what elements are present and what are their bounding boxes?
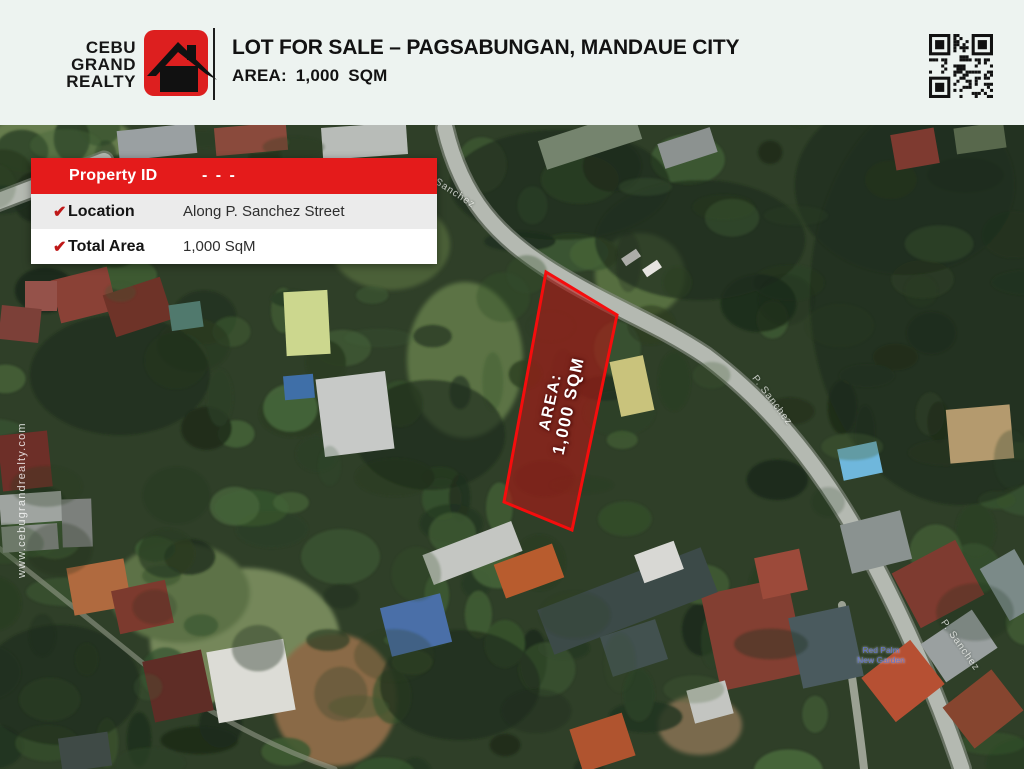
header-bar: CEBU GRAND REALTY LOT FOR SALE – PAGSABU… [0, 0, 1024, 125]
location-row: ✔ Location Along P. Sanchez Street [31, 194, 437, 229]
check-icon: ✔ [53, 202, 66, 222]
property-id-value: - - - [202, 167, 237, 185]
brand-logo: CEBU GRAND REALTY [52, 30, 210, 98]
location-label: Location [68, 203, 135, 221]
check-icon: ✔ [53, 237, 66, 257]
flyer: AREA: 1,000 SQM Sanchez P. Sanchez P. Sa… [0, 0, 1024, 769]
property-id-row: Property ID - - - [31, 158, 437, 194]
brand-name: CEBU GRAND REALTY [52, 39, 136, 90]
watermark-url: www.cebugrandrealty.com [16, 422, 28, 578]
total-area-label: Total Area [68, 238, 144, 256]
brand-line2: GRAND [52, 56, 136, 73]
poi-label: Red Palm New Garden [842, 646, 920, 665]
total-area-value: 1,000 SqM [183, 238, 256, 255]
listing-area: AREA: 1,000 SQM [232, 66, 388, 86]
header-divider [213, 28, 215, 100]
property-id-label: Property ID [69, 167, 157, 185]
qr-code [929, 34, 993, 98]
listing-title: LOT FOR SALE – PAGSABUNGAN, MANDAUE CITY [232, 36, 739, 60]
property-info-card: Property ID - - - ✔ Location Along P. Sa… [31, 158, 437, 264]
total-area-row: ✔ Total Area 1,000 SqM [31, 229, 437, 264]
brand-line3: REALTY [52, 73, 136, 90]
brand-line1: CEBU [52, 39, 136, 56]
poi-line2: New Garden [842, 656, 920, 666]
house-icon [144, 30, 210, 98]
location-value: Along P. Sanchez Street [183, 203, 345, 220]
